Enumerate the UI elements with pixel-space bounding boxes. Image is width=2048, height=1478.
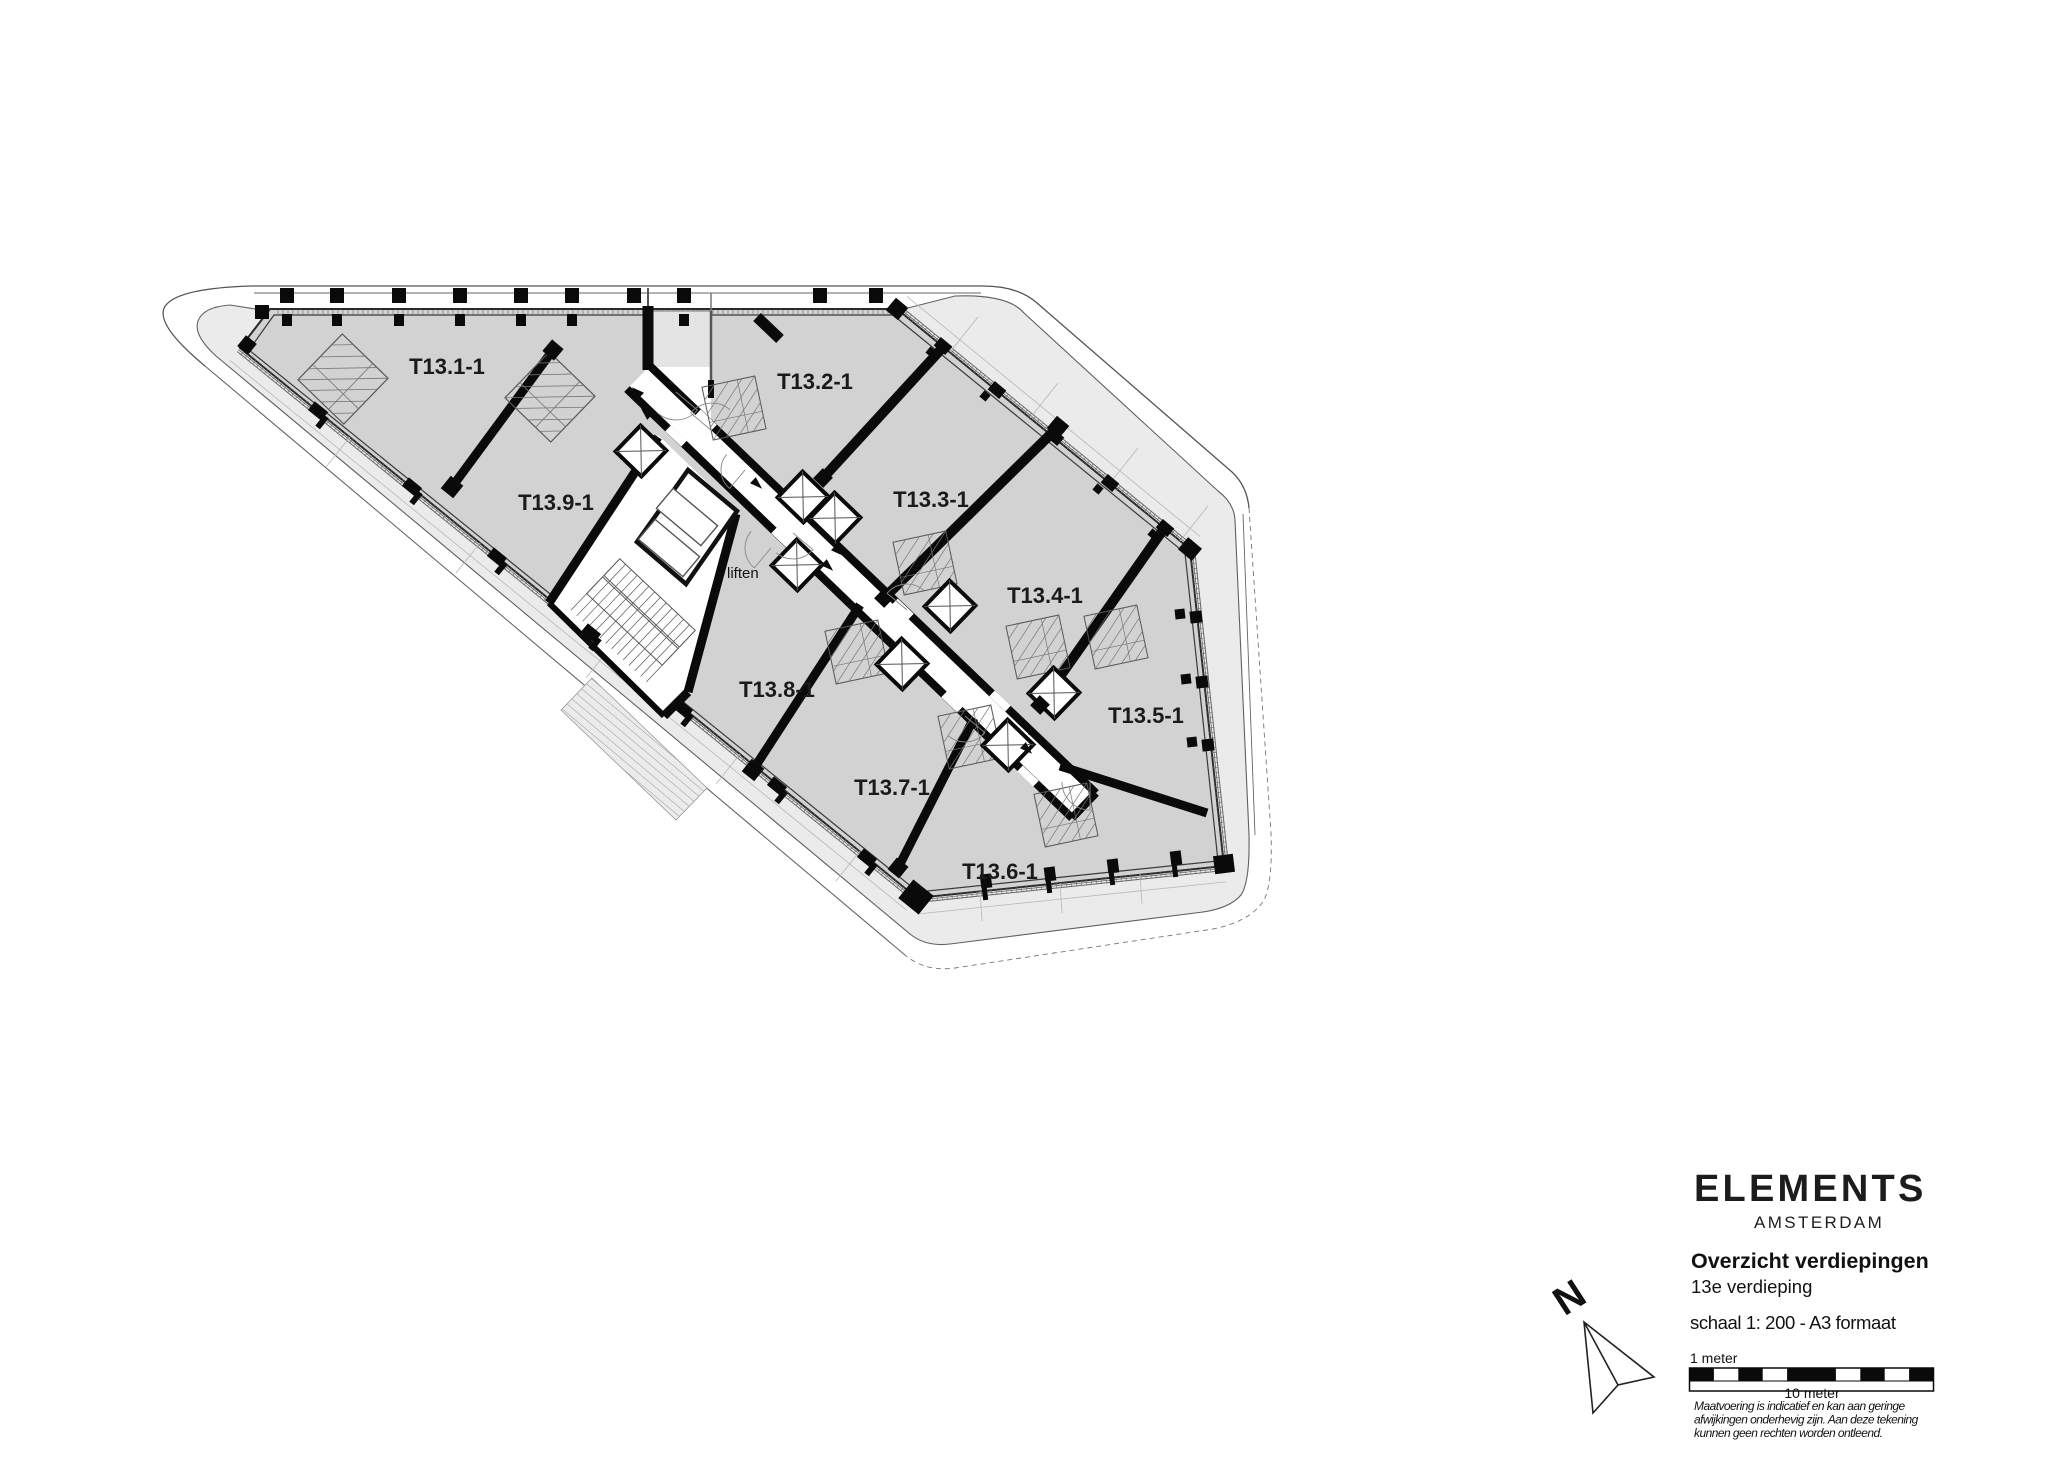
svg-text:schaal 1: 200 - A3 formaat: schaal 1: 200 - A3 formaat <box>1690 1312 1896 1333</box>
svg-text:T13.1-1: T13.1-1 <box>409 354 485 379</box>
svg-text:kunnen geen rechten worden ont: kunnen geen rechten worden ontleend. <box>1694 1426 1882 1440</box>
svg-text:T13.4-1: T13.4-1 <box>1007 583 1083 608</box>
svg-text:afwijkingen onderhevig zijn. A: afwijkingen onderhevig zijn. Aan deze te… <box>1694 1413 1919 1427</box>
svg-text:Maatvoering is indicatief en k: Maatvoering is indicatief en kan aan ger… <box>1694 1399 1905 1413</box>
svg-text:T13.9-1: T13.9-1 <box>518 490 594 515</box>
svg-text:T13.7-1: T13.7-1 <box>854 775 930 800</box>
svg-text:1 meter: 1 meter <box>1690 1350 1738 1366</box>
svg-text:T13.8-1: T13.8-1 <box>739 677 815 702</box>
svg-text:T13.6-1: T13.6-1 <box>962 859 1038 884</box>
svg-text:Overzicht verdiepingen: Overzicht verdiepingen <box>1691 1249 1929 1273</box>
svg-text:ELEMENTS: ELEMENTS <box>1694 1168 1927 1210</box>
svg-text:T13.2-1: T13.2-1 <box>777 369 853 394</box>
svg-text:T13.3-1: T13.3-1 <box>893 487 969 512</box>
svg-text:T13.5-1: T13.5-1 <box>1108 703 1184 728</box>
svg-text:AMSTERDAM: AMSTERDAM <box>1754 1213 1884 1232</box>
svg-text:13e verdieping: 13e verdieping <box>1691 1276 1812 1297</box>
